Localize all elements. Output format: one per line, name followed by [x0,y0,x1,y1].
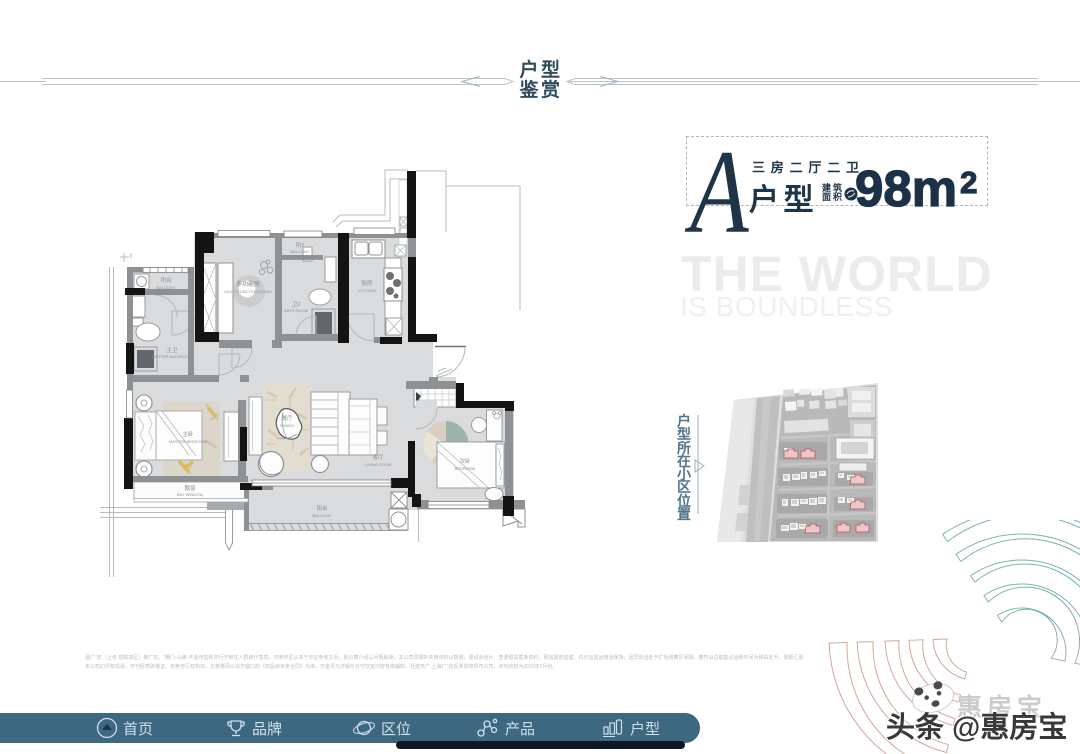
svg-text:BAY WINDOW: BAY WINDOW [177,492,204,497]
svg-text:阳台: 阳台 [160,276,172,284]
svg-text:主卫: 主卫 [166,346,178,354]
svg-text:BALCONY: BALCONY [290,249,309,254]
svg-text:主卧: 主卧 [182,430,194,438]
svg-text:MASTER BEDROOM: MASTER BEDROOM [169,439,207,444]
svg-text:BALCONY: BALCONY [156,285,175,290]
svg-text:飘窗: 飘窗 [184,484,196,492]
svg-text:MASTER BATHROOM: MASTER BATHROOM [152,354,193,359]
svg-text:BEDROOM: BEDROOM [455,466,476,471]
svg-text:次卧: 次卧 [459,457,471,465]
svg-text:阳台: 阳台 [316,504,328,512]
svg-text:KITCHEN: KITCHEN [358,288,376,293]
svg-text:LIVING ROOM: LIVING ROOM [365,462,392,467]
svg-text:餐厅: 餐厅 [281,414,293,422]
svg-text:阳2: 阳2 [296,241,305,249]
svg-text:MULTI-FUNCTION ROOM: MULTI-FUNCTION ROOM [224,289,271,294]
svg-text:DINING: DINING [280,423,294,428]
svg-text:多功能房: 多功能房 [236,280,260,288]
svg-text:BALCONY: BALCONY [312,513,331,518]
svg-text:卫2: 卫2 [292,301,301,308]
svg-text:客厅: 客厅 [372,453,384,461]
svg-text:BATH ROOM: BATH ROOM [284,308,308,313]
svg-text:厨房: 厨房 [361,279,373,287]
